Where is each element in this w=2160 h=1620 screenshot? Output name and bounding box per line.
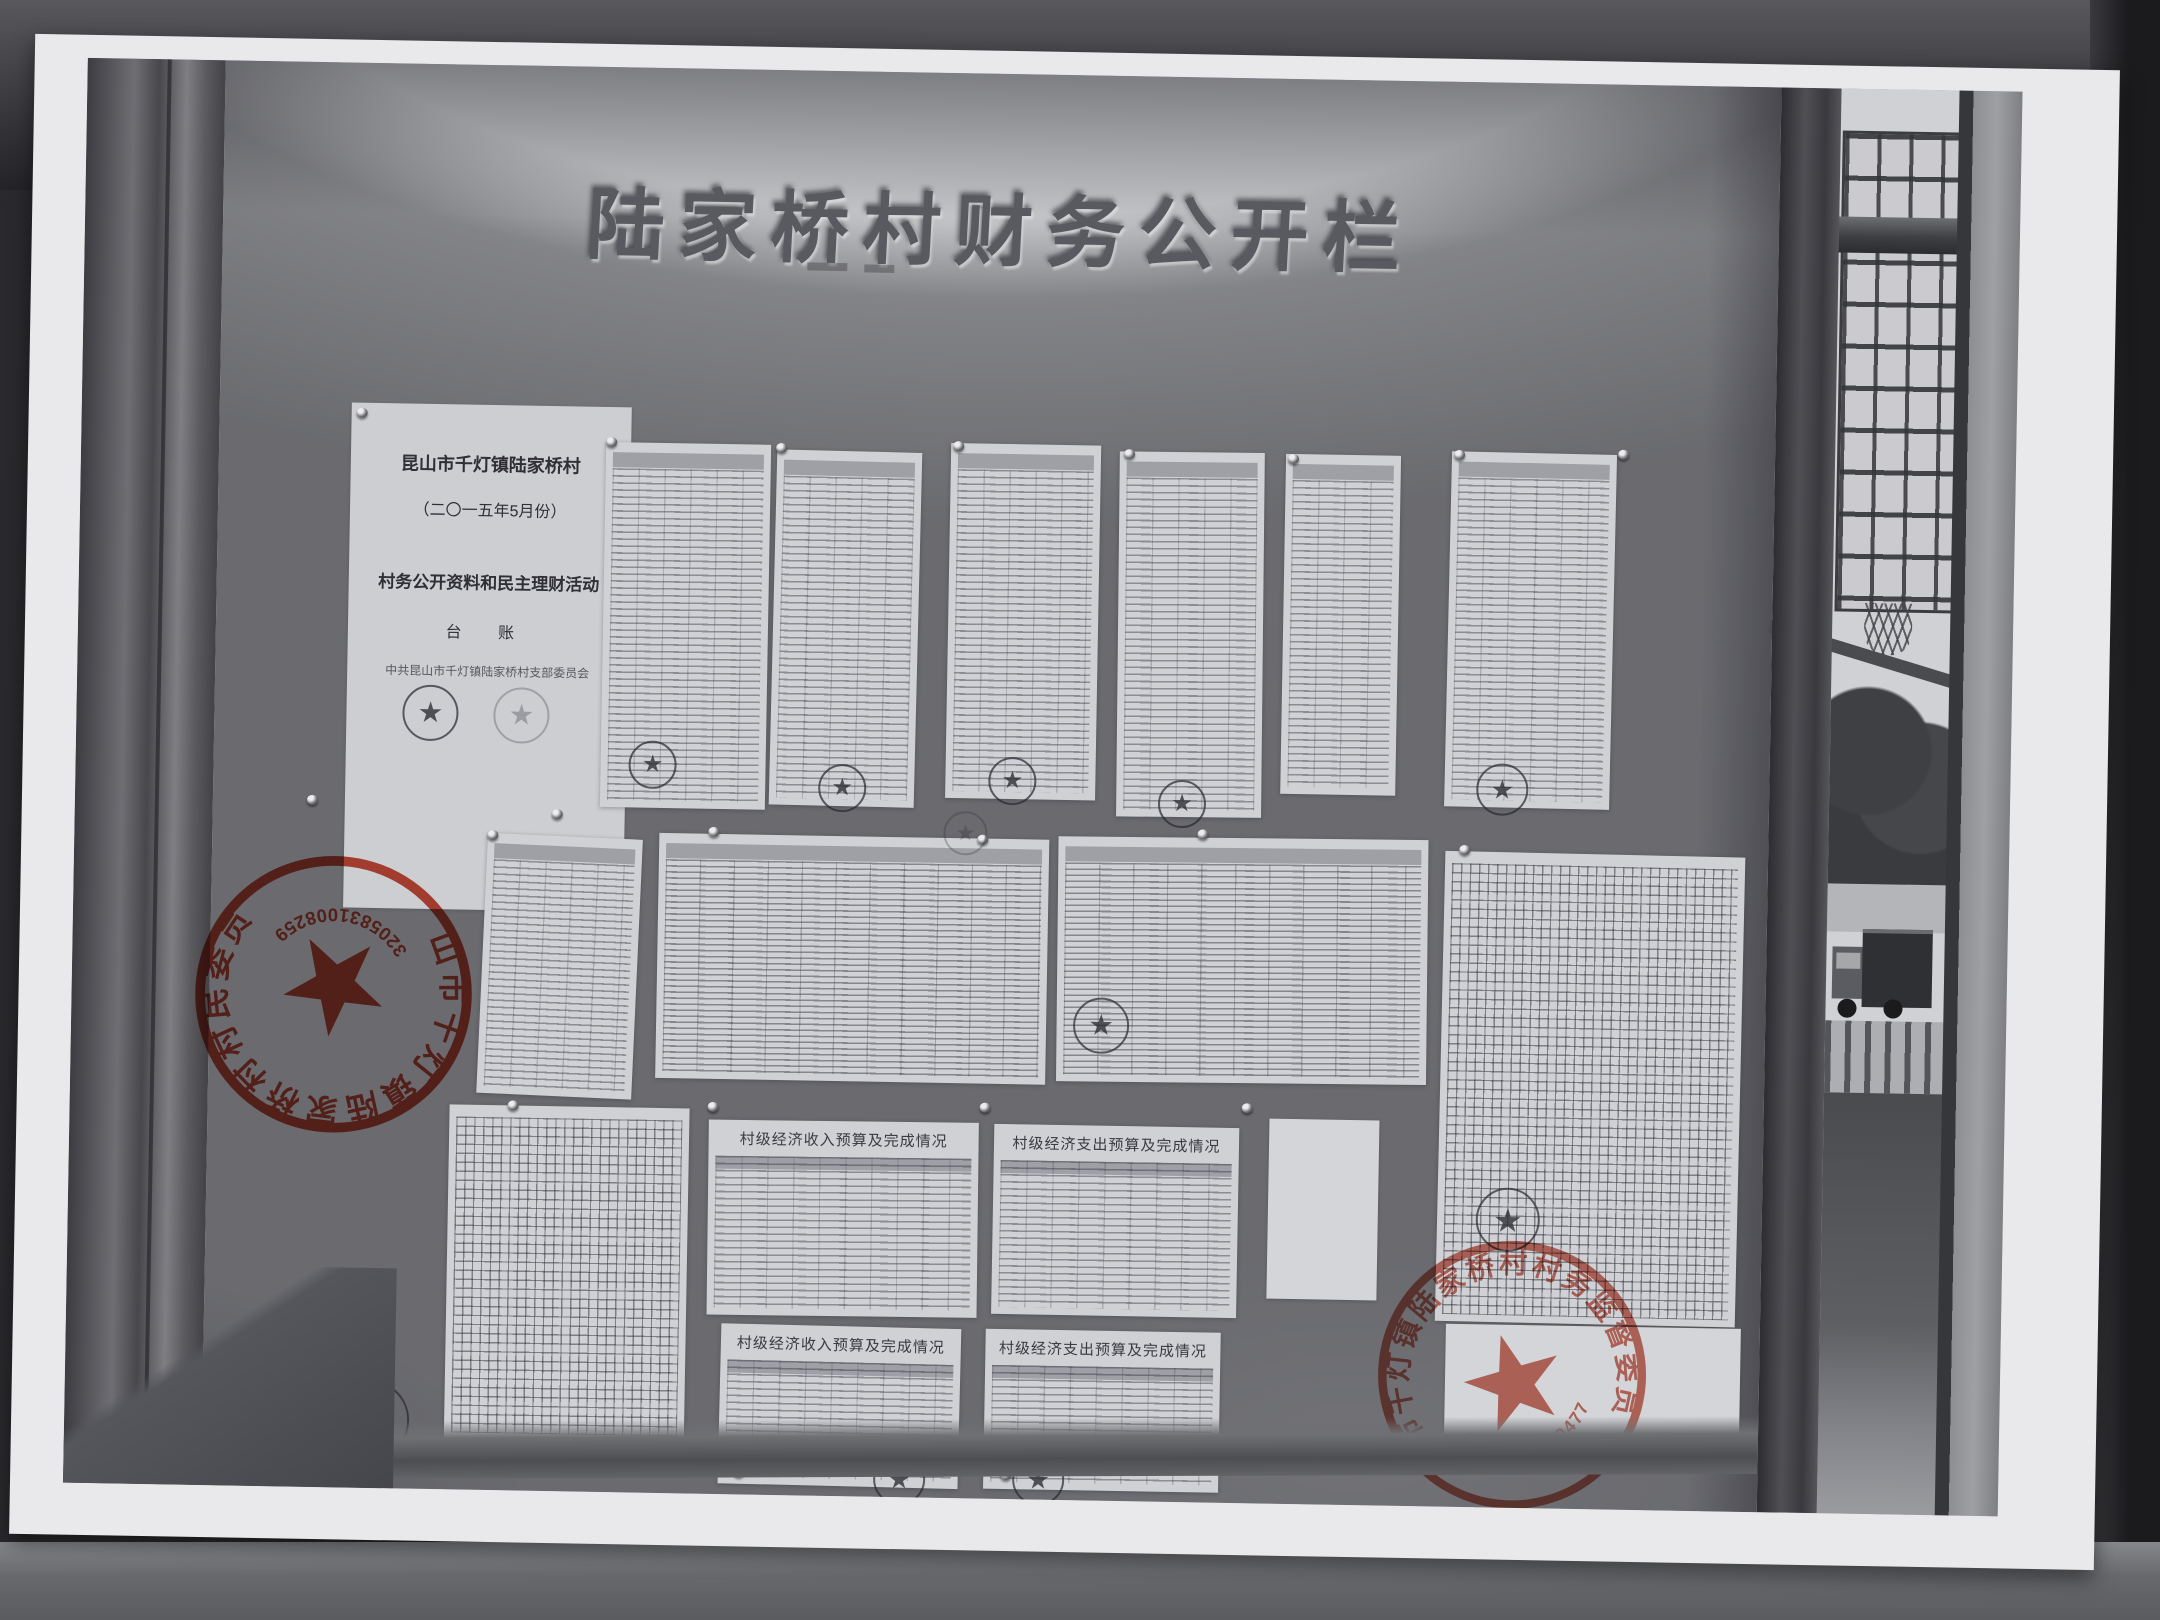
notice-board: 陆家桥村财务公开栏 昆山市千灯镇陆家桥村 （二〇一五年5月份） 村务公开资料和民… xyxy=(201,60,1782,1512)
fence xyxy=(1824,1020,1951,1094)
frame-base-shadow xyxy=(63,1263,397,1489)
seal-ring-text: 昆山市千灯镇陆家桥村村民委员会 xyxy=(175,896,495,1156)
trees xyxy=(1828,676,1958,890)
push-pin xyxy=(606,437,617,447)
expense-budget-table: 村级经济支出预算及完成情况 xyxy=(991,1124,1239,1318)
posted-table-document xyxy=(945,443,1101,801)
cover-line-subject: 村务公开资料和民主理财活动 xyxy=(349,566,629,596)
push-pin xyxy=(357,408,368,418)
seal-star-icon xyxy=(279,937,389,1043)
basketball-stand-lattice xyxy=(1834,130,1964,613)
black-seal-stamp-icon xyxy=(1476,763,1529,816)
push-pin xyxy=(708,827,719,837)
posted-table-document xyxy=(600,442,771,810)
cover-line-village: 昆山市千灯镇陆家桥村 xyxy=(351,448,631,479)
smudge-mark xyxy=(807,262,847,271)
posted-table-document xyxy=(769,449,923,807)
table-title: 村级经济支出预算及完成情况 xyxy=(994,1132,1239,1157)
smudge-mark xyxy=(864,264,894,273)
push-pin xyxy=(508,1100,519,1110)
photo-print-scene: 陆家桥村财务公开栏 昆山市千灯镇陆家桥村 （二〇一五年5月份） 村务公开资料和民… xyxy=(0,0,2160,1620)
red-seal-village-committee: 昆山市千灯镇陆家桥村村民委员会 3205831008259 xyxy=(172,833,495,1156)
push-pin xyxy=(708,1102,719,1112)
photo-of-notice-board: 陆家桥村财务公开栏 昆山市千灯镇陆家桥村 （二〇一五年5月份） 村务公开资料和民… xyxy=(63,58,2023,1517)
cover-line-ledger: 台 账 xyxy=(348,616,628,645)
posted-wide-table-document xyxy=(655,833,1049,1085)
cover-line-committee: 中共昆山市千灯镇陆家桥村支部委员会 xyxy=(347,660,627,682)
basketball-net xyxy=(1864,603,1913,656)
posted-table-document xyxy=(476,833,643,1100)
push-pin xyxy=(552,809,563,819)
push-pin xyxy=(1454,450,1465,460)
window-right-section xyxy=(1757,87,2023,1516)
push-pin xyxy=(1618,450,1629,460)
svg-text:昆山市千灯镇陆家桥村村民委员会: 昆山市千灯镇陆家桥村村民委员会 xyxy=(175,896,495,1156)
push-pin xyxy=(953,441,964,451)
income-budget-table: 村级经济收入预算及完成情况 xyxy=(707,1120,979,1318)
posted-grid-table-document xyxy=(444,1104,690,1443)
push-pin xyxy=(776,443,787,453)
table-title: 村级经济收入预算及完成情况 xyxy=(721,1331,961,1358)
posted-table-document xyxy=(1280,454,1401,796)
push-pin xyxy=(1124,449,1135,459)
posted-table-document xyxy=(1444,451,1617,810)
push-pin xyxy=(980,1103,991,1113)
board-title: 陆家桥村财务公开栏 xyxy=(220,156,1782,295)
push-pin xyxy=(307,795,318,805)
seal-code: 3205831008259 xyxy=(268,897,416,963)
push-pin xyxy=(1242,1103,1253,1113)
lower-wall xyxy=(1817,1092,1950,1515)
board-bottom-rail xyxy=(201,1416,1758,1479)
truck-cargo-body xyxy=(1862,929,1933,1008)
push-pin xyxy=(487,830,498,840)
table-title: 村级经济收入预算及完成情况 xyxy=(709,1128,979,1152)
posted-table-document xyxy=(1116,451,1265,817)
truck-wheel xyxy=(1883,999,1902,1018)
cover-line-date: （二〇一五年5月份） xyxy=(350,494,630,523)
truck-wheel xyxy=(1837,999,1856,1018)
truck-window xyxy=(1836,952,1860,968)
svg-text:3205831008259: 3205831008259 xyxy=(268,897,416,963)
push-pin xyxy=(1197,829,1208,839)
table-title: 村级经济支出预算及完成情况 xyxy=(985,1337,1220,1362)
push-pin xyxy=(1288,454,1299,464)
push-pin xyxy=(1459,845,1470,855)
truck xyxy=(1831,926,1935,1024)
black-seal-stamp-icon xyxy=(1158,780,1207,829)
photo-print-paper: 陆家桥村财务公开栏 昆山市千灯镇陆家桥村 （二〇一五年5月份） 村务公开资料和民… xyxy=(9,34,2120,1570)
